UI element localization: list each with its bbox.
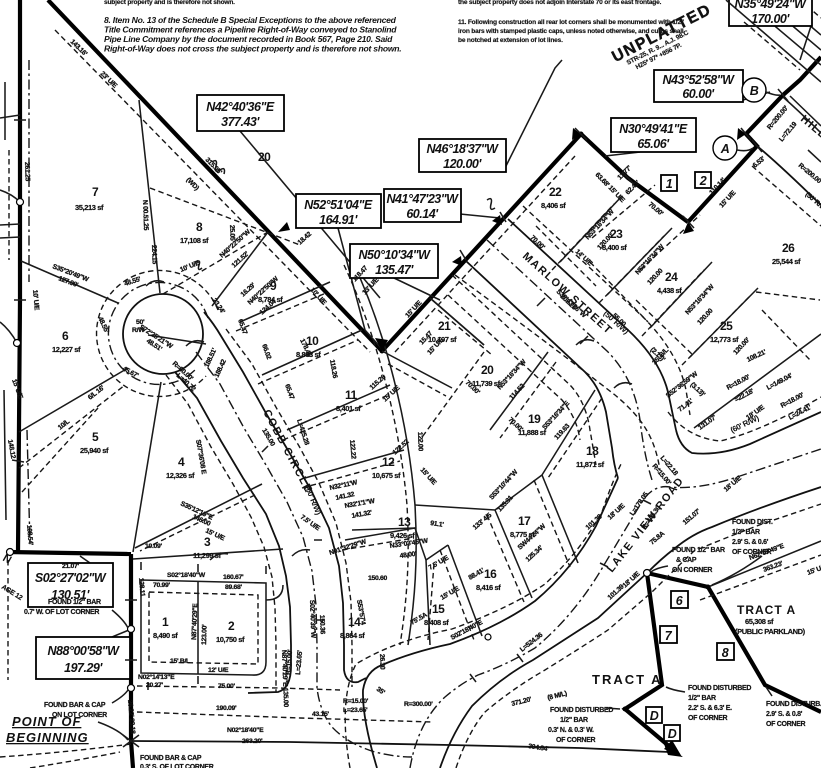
svg-text:11: 11 [345,388,358,402]
svg-text:122.00: 122.00 [416,432,424,452]
svg-text:160.67': 160.67' [223,574,244,581]
svg-text:8: 8 [196,220,203,234]
svg-text:N88°00'58"W: N88°00'58"W [48,644,121,658]
svg-text:N46°18'37"W: N46°18'37"W [427,142,500,156]
svg-text:224.15: 224.15 [150,245,158,265]
svg-text:N52°51'04"E: N52°51'04"E [304,198,373,212]
svg-text:70.99': 70.99' [153,582,171,589]
svg-text:OF CORNER: OF CORNER [556,737,596,744]
svg-text:123.00': 123.00' [201,624,209,645]
svg-text:190.09': 190.09' [216,705,237,712]
svg-text:2: 2 [699,174,707,188]
svg-text:12,227 sf: 12,227 sf [52,345,81,354]
svg-text:75.00': 75.00' [218,683,236,690]
svg-text:9,426 sf: 9,426 sf [390,531,415,540]
svg-text:1/2" BAR: 1/2" BAR [560,717,588,724]
svg-text:164.91': 164.91' [319,213,358,227]
svg-text:60.14': 60.14' [406,207,439,221]
svg-text:N02°18'40"E: N02°18'40"E [227,726,264,734]
svg-text:1: 1 [162,615,169,629]
svg-text:A: A [720,142,730,156]
svg-text:N35°49'24"W: N35°49'24"W [735,0,808,11]
svg-text:FOUND BAR & CAP: FOUND BAR & CAP [140,755,202,762]
svg-text:5: 5 [92,430,99,444]
svg-text:10,750 sf: 10,750 sf [216,635,245,644]
svg-text:FOUND DISTURBED: FOUND DISTURBED [550,707,613,714]
svg-text:0.3' N. & 0.3' W.: 0.3' N. & 0.3' W. [548,727,594,734]
svg-text:subject property and is theref: subject property and is therefore not sh… [104,0,235,6]
svg-text:15' B/L: 15' B/L [170,658,190,665]
svg-text:17: 17 [518,514,531,528]
svg-text:(PUBLIC PARKLAND): (PUBLIC PARKLAND) [735,627,806,636]
svg-text:65,308 sf: 65,308 sf [745,617,774,626]
svg-text:25: 25 [720,319,733,333]
svg-text:43.15': 43.15' [312,711,330,718]
svg-text:11. Following construction al: 11. Following construction all rear lot … [458,19,684,26]
svg-text:3: 3 [204,535,211,549]
svg-text:N41°47'23"W: N41°47'23"W [387,192,460,206]
svg-text:89.68': 89.68' [225,584,243,591]
svg-text:TRACT A: TRACT A [737,603,796,617]
svg-text:Title Commitment references a: Title Commitment references a Pipeline R… [104,25,397,35]
svg-text:4,438 sf: 4,438 sf [657,286,682,295]
svg-text:0.7' W. OF LOT CORNER: 0.7' W. OF LOT CORNER [24,609,99,616]
svg-text:25,544 sf: 25,544 sf [772,257,801,266]
svg-text:D: D [668,727,677,741]
svg-text:2.9' S. & 0.8': 2.9' S. & 0.8' [766,711,803,718]
svg-text:12,326 sf: 12,326 sf [166,471,195,480]
svg-text:25,940 sf: 25,940 sf [80,446,109,455]
svg-text:22: 22 [549,185,562,199]
svg-text:2: 2 [228,619,235,633]
svg-text:FOUND DISTURBED: FOUND DISTURBED [688,685,751,692]
svg-text:1: 1 [666,177,673,191]
svg-text:R=300.00': R=300.00' [404,701,433,708]
svg-text:N43°52'58"W: N43°52'58"W [663,73,736,87]
svg-text:261.25: 261.25 [23,162,31,182]
svg-text:Pipe Line Company by the docum: Pipe Line Company by the document record… [104,34,393,44]
svg-text:18: 18 [586,444,599,458]
svg-text:263.20': 263.20' [242,738,263,745]
svg-text:150.60: 150.60 [368,575,388,582]
svg-text:1/2" BAR: 1/2" BAR [732,529,760,536]
svg-text:2.2' S. & 6.3' E.: 2.2' S. & 6.3' E. [688,705,732,712]
svg-text:be notched at extension of lot: be notched at extension of lot lines. [458,37,563,44]
svg-text:170.00': 170.00' [751,12,790,26]
svg-text:11,871 sf: 11,871 sf [576,460,605,469]
svg-text:16: 16 [484,567,497,581]
svg-text:OF CORNER: OF CORNER [766,721,806,728]
svg-text:19.09': 19.09' [145,543,163,550]
svg-text:13: 13 [398,515,411,529]
svg-text:FOUND BAR & CAP: FOUND BAR & CAP [44,702,106,709]
svg-text:D: D [650,709,659,723]
svg-text:4: 4 [178,455,185,469]
svg-text:20: 20 [481,363,494,377]
svg-text:6: 6 [62,329,69,343]
svg-text:N 00.51.25: N 00.51.25 [141,200,149,231]
svg-text:L=23.65': L=23.65' [343,707,368,714]
svg-text:OF CORNER: OF CORNER [688,715,728,722]
svg-text:R=15.00': R=15.00' [343,698,369,705]
svg-text:8,416 sf: 8,416 sf [476,583,501,592]
svg-text:60.00': 60.00' [682,87,715,101]
svg-text:12: 12 [382,455,395,469]
svg-text:N30°49'41"E: N30°49'41"E [619,122,688,136]
svg-text:S02°18'40"W: S02°18'40"W [167,571,206,579]
svg-text:N50°10'34"W: N50°10'34"W [359,248,432,262]
svg-text:8,864 sf: 8,864 sf [340,631,365,640]
svg-text:the subject property does not: the subject property does not adjoin Int… [458,0,662,6]
svg-text:FOUND DISTURB.: FOUND DISTURB. [766,701,821,708]
svg-text:S02°40'39"W: S02°40'39"W [308,600,317,639]
svg-text:FOUND 1/2" BAR: FOUND 1/2" BAR [48,599,101,606]
svg-text:21: 21 [438,319,451,333]
svg-text:8,490 sf: 8,490 sf [153,631,178,640]
svg-text:Right-of-Way does not cross th: Right-of-Way does not cross the subject … [104,44,401,54]
svg-text:25.05: 25.05 [228,225,236,241]
svg-text:26: 26 [782,241,795,255]
svg-text:65.06': 65.06' [637,137,670,151]
svg-text:& CAP: & CAP [676,557,697,564]
svg-text:19: 19 [528,412,541,426]
svg-text:377.43': 377.43' [221,115,260,129]
svg-text:10,675 sf: 10,675 sf [372,471,401,480]
svg-text:135.47': 135.47' [375,263,414,277]
svg-text:17,108 sf: 17,108 sf [180,236,209,245]
svg-text:8: 8 [722,646,729,660]
svg-text:0.3' S. OF LOT CORNER: 0.3' S. OF LOT CORNER [140,764,214,768]
svg-text:N02°14'13"E: N02°14'13"E [138,673,175,681]
svg-text:197.29': 197.29' [64,661,103,675]
svg-text:ON CORNER: ON CORNER [672,567,712,574]
svg-text:ON LOT CORNER: ON LOT CORNER [52,712,107,719]
svg-text:8,406 sf: 8,406 sf [541,201,566,210]
svg-text:12,773 sf: 12,773 sf [710,335,739,344]
svg-text:12' U/E: 12' U/E [208,667,229,674]
svg-text:15: 15 [432,602,445,616]
svg-text:150.36: 150.36 [318,615,326,635]
svg-text:50': 50' [136,319,145,326]
svg-text:BEGINNING: BEGINNING [6,730,89,745]
svg-text:8. Item No. 13 of the Schedul: 8. Item No. 13 of the Schedule B Special… [104,15,397,25]
svg-text:1/2" BAR: 1/2" BAR [688,695,716,702]
svg-text:8,408 sf: 8,408 sf [424,618,449,627]
svg-text:TRACT A: TRACT A [592,672,663,687]
svg-text:20: 20 [258,150,271,164]
svg-text:N87°40'29"E: N87°40'29"E [190,603,199,640]
svg-text:N42°40'36"E: N42°40'36"E [206,100,275,114]
svg-text:7: 7 [92,185,99,199]
svg-text:2.9' S. & 0.6': 2.9' S. & 0.6' [732,539,769,546]
svg-text:35,213 sf: 35,213 sf [75,203,104,212]
svg-text:FOUND DIST.: FOUND DIST. [732,519,773,526]
svg-text:120.00': 120.00' [443,157,482,171]
svg-text:B: B [750,84,759,98]
svg-text:21.07': 21.07' [62,563,80,570]
svg-text:S02°27'02"W: S02°27'02"W [35,571,107,585]
svg-text:R/W: R/W [132,327,145,334]
svg-text:26.30: 26.30 [378,654,386,670]
svg-text:8,401 sf: 8,401 sf [336,404,361,413]
svg-text:24: 24 [665,270,678,284]
svg-text:FOUND 1/2" BAR: FOUND 1/2" BAR [672,547,725,554]
svg-text:20.27': 20.27' [146,682,164,689]
